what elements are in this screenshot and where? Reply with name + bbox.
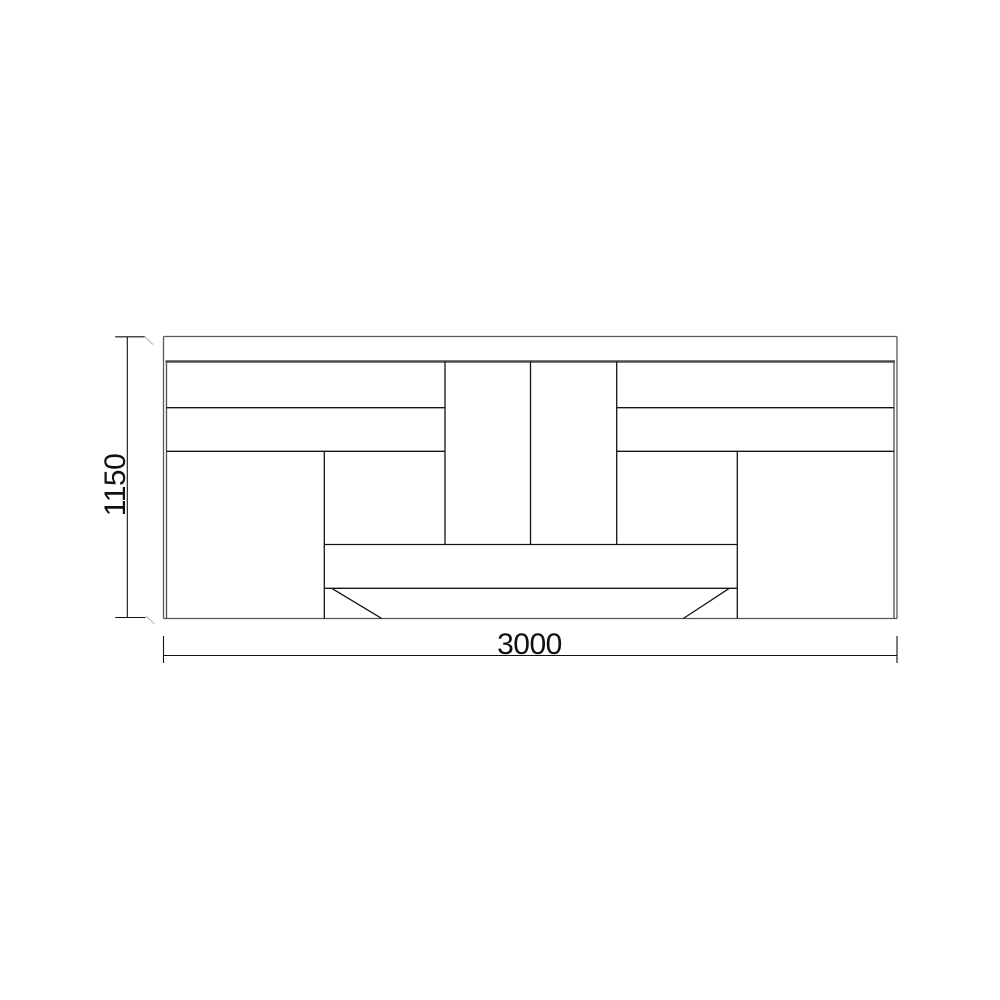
height-dim-oblique-bottom bbox=[146, 616, 155, 624]
height-dimension-label: 1150 bbox=[99, 454, 132, 517]
labels-layer: 1150 3000 bbox=[99, 454, 562, 661]
segments-layer bbox=[115, 337, 897, 664]
height-dim-oblique-top bbox=[145, 337, 154, 345]
plinth-left-bevel bbox=[332, 588, 382, 618]
elevation-drawing: 1150 3000 bbox=[0, 0, 1000, 1000]
canvas: 1150 3000 bbox=[0, 0, 1000, 1000]
width-dimension-label: 3000 bbox=[497, 628, 562, 661]
plinth-right-bevel bbox=[683, 588, 729, 618]
